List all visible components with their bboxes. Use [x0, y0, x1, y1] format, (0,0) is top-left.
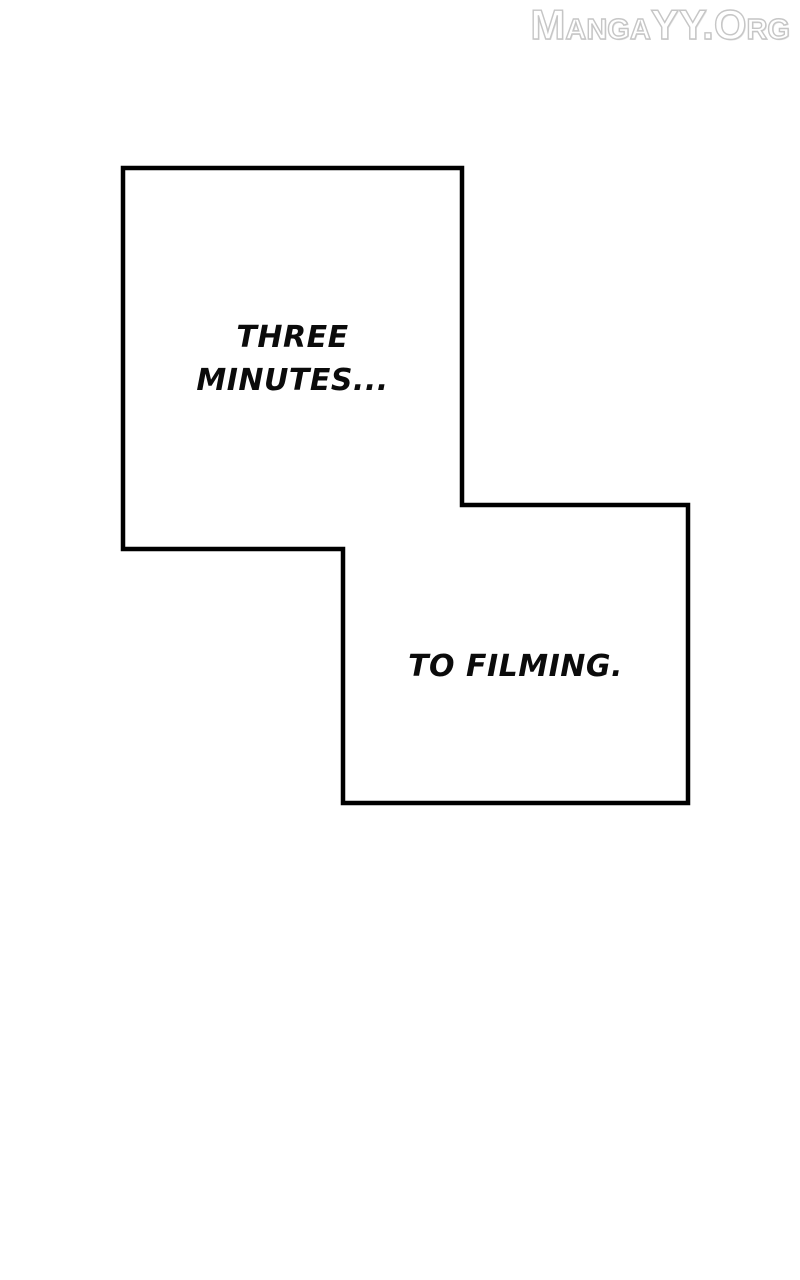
speech-line: MINUTES...: [196, 359, 388, 402]
speech-line: TO FILMING.: [408, 645, 623, 688]
manga-page: MangaYY.Org THREE MINUTES... TO FILMING.: [0, 0, 800, 1280]
speech-text-three-minutes: THREE MINUTES...: [123, 168, 462, 549]
speech-text-to-filming: TO FILMING.: [343, 505, 688, 803]
speech-line: THREE: [236, 316, 348, 359]
